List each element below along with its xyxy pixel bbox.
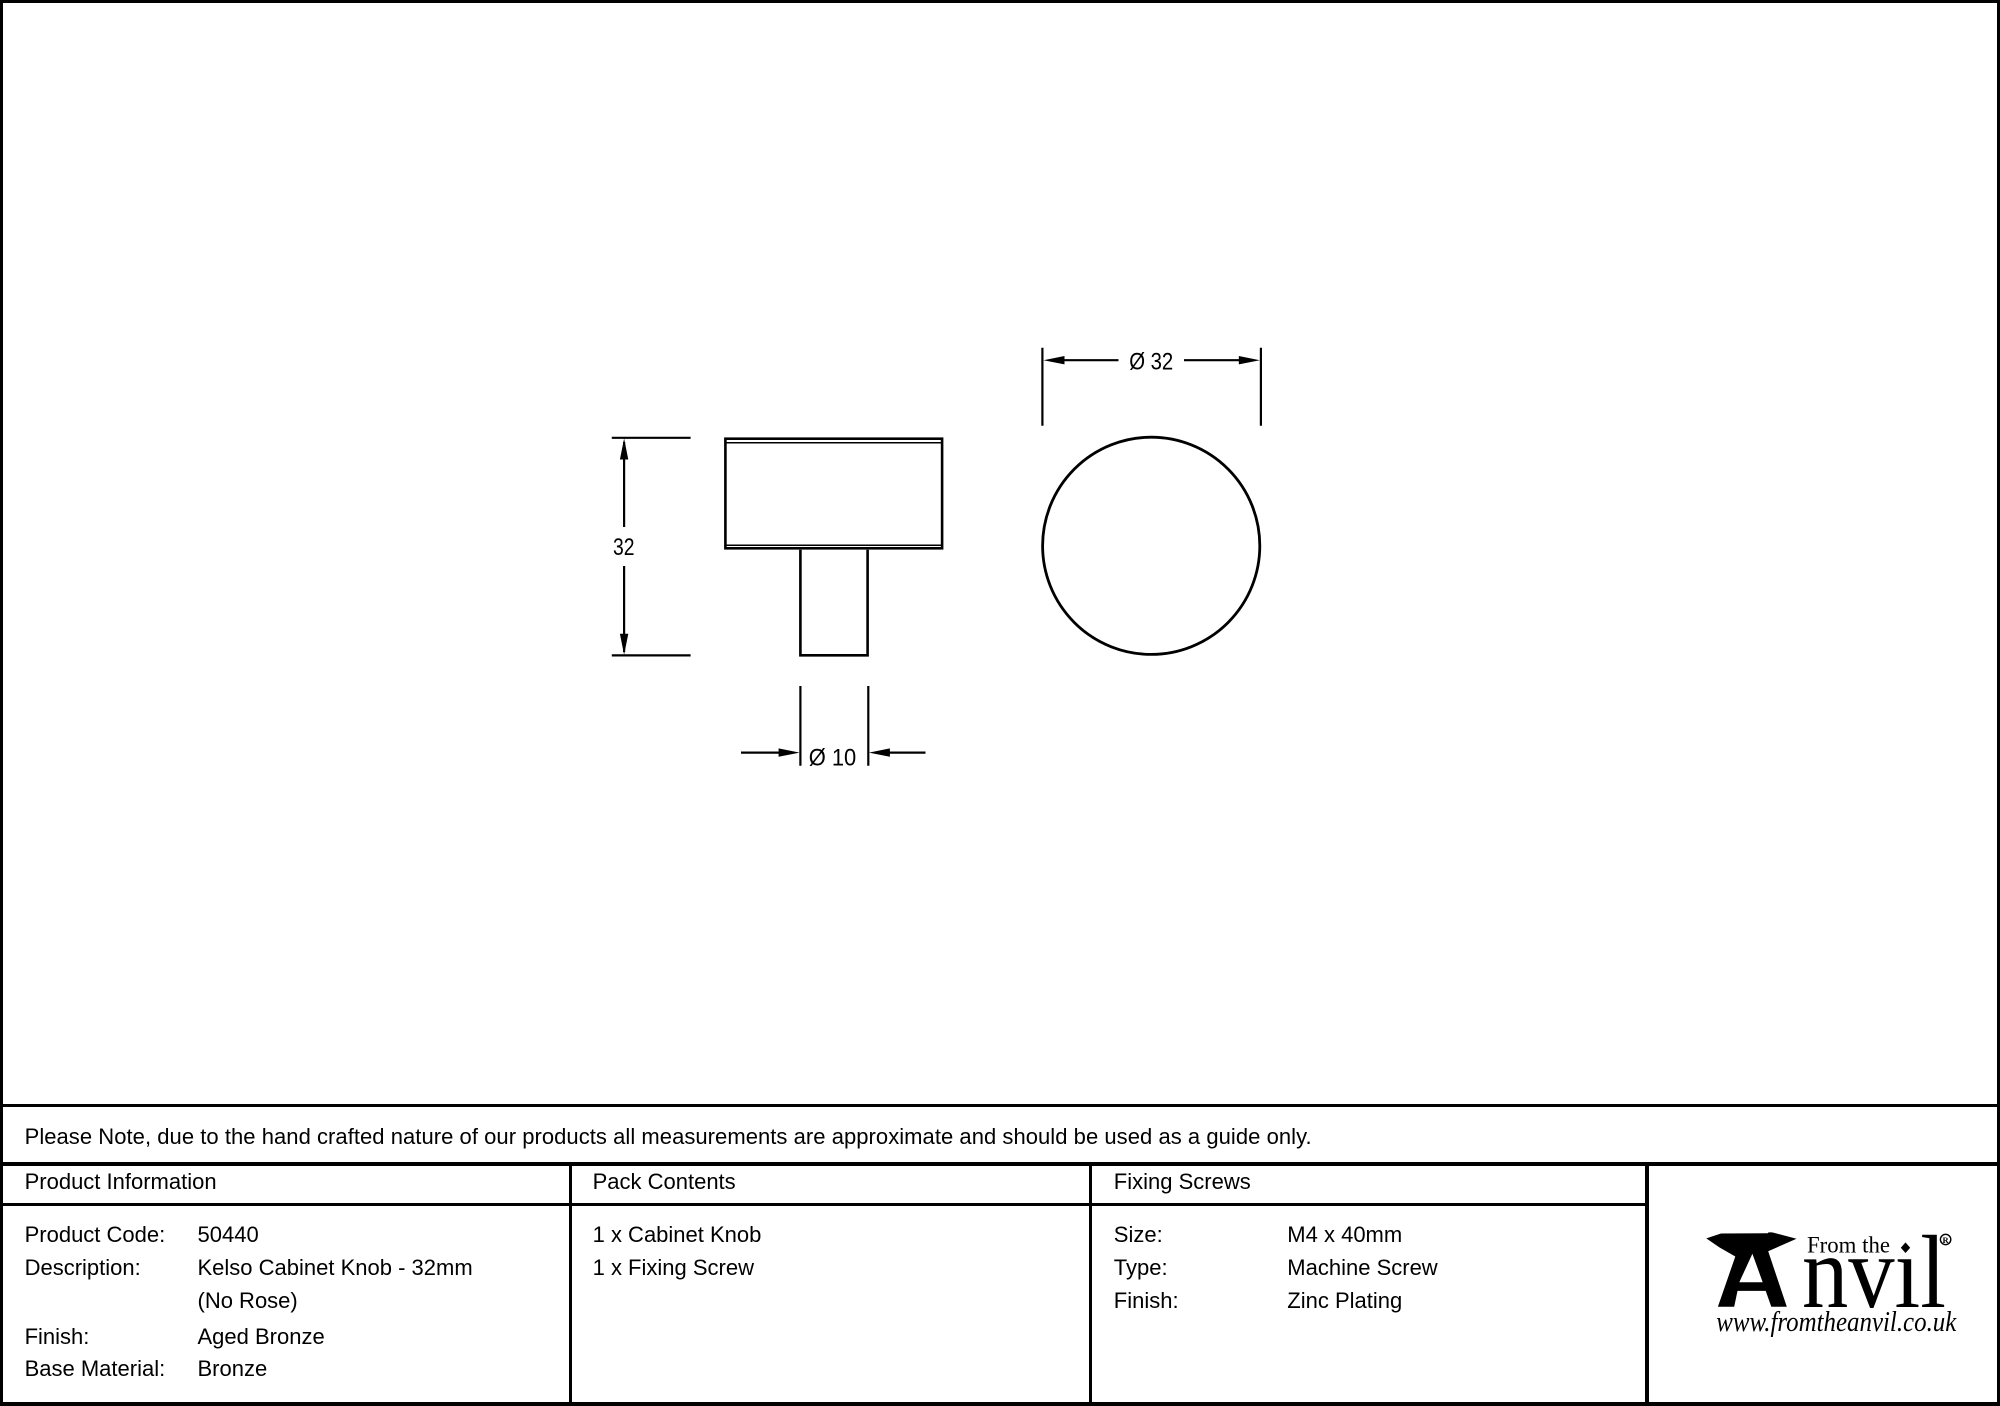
svg-text:32: 32 xyxy=(613,534,635,561)
svg-text:R: R xyxy=(1943,1235,1950,1245)
svg-text:Ø 10: Ø 10 xyxy=(809,745,857,772)
svg-text:Ø 32: Ø 32 xyxy=(1129,348,1173,375)
svg-text:www.fromtheanvil.co.uk: www.fromtheanvil.co.uk xyxy=(1716,1306,1957,1338)
